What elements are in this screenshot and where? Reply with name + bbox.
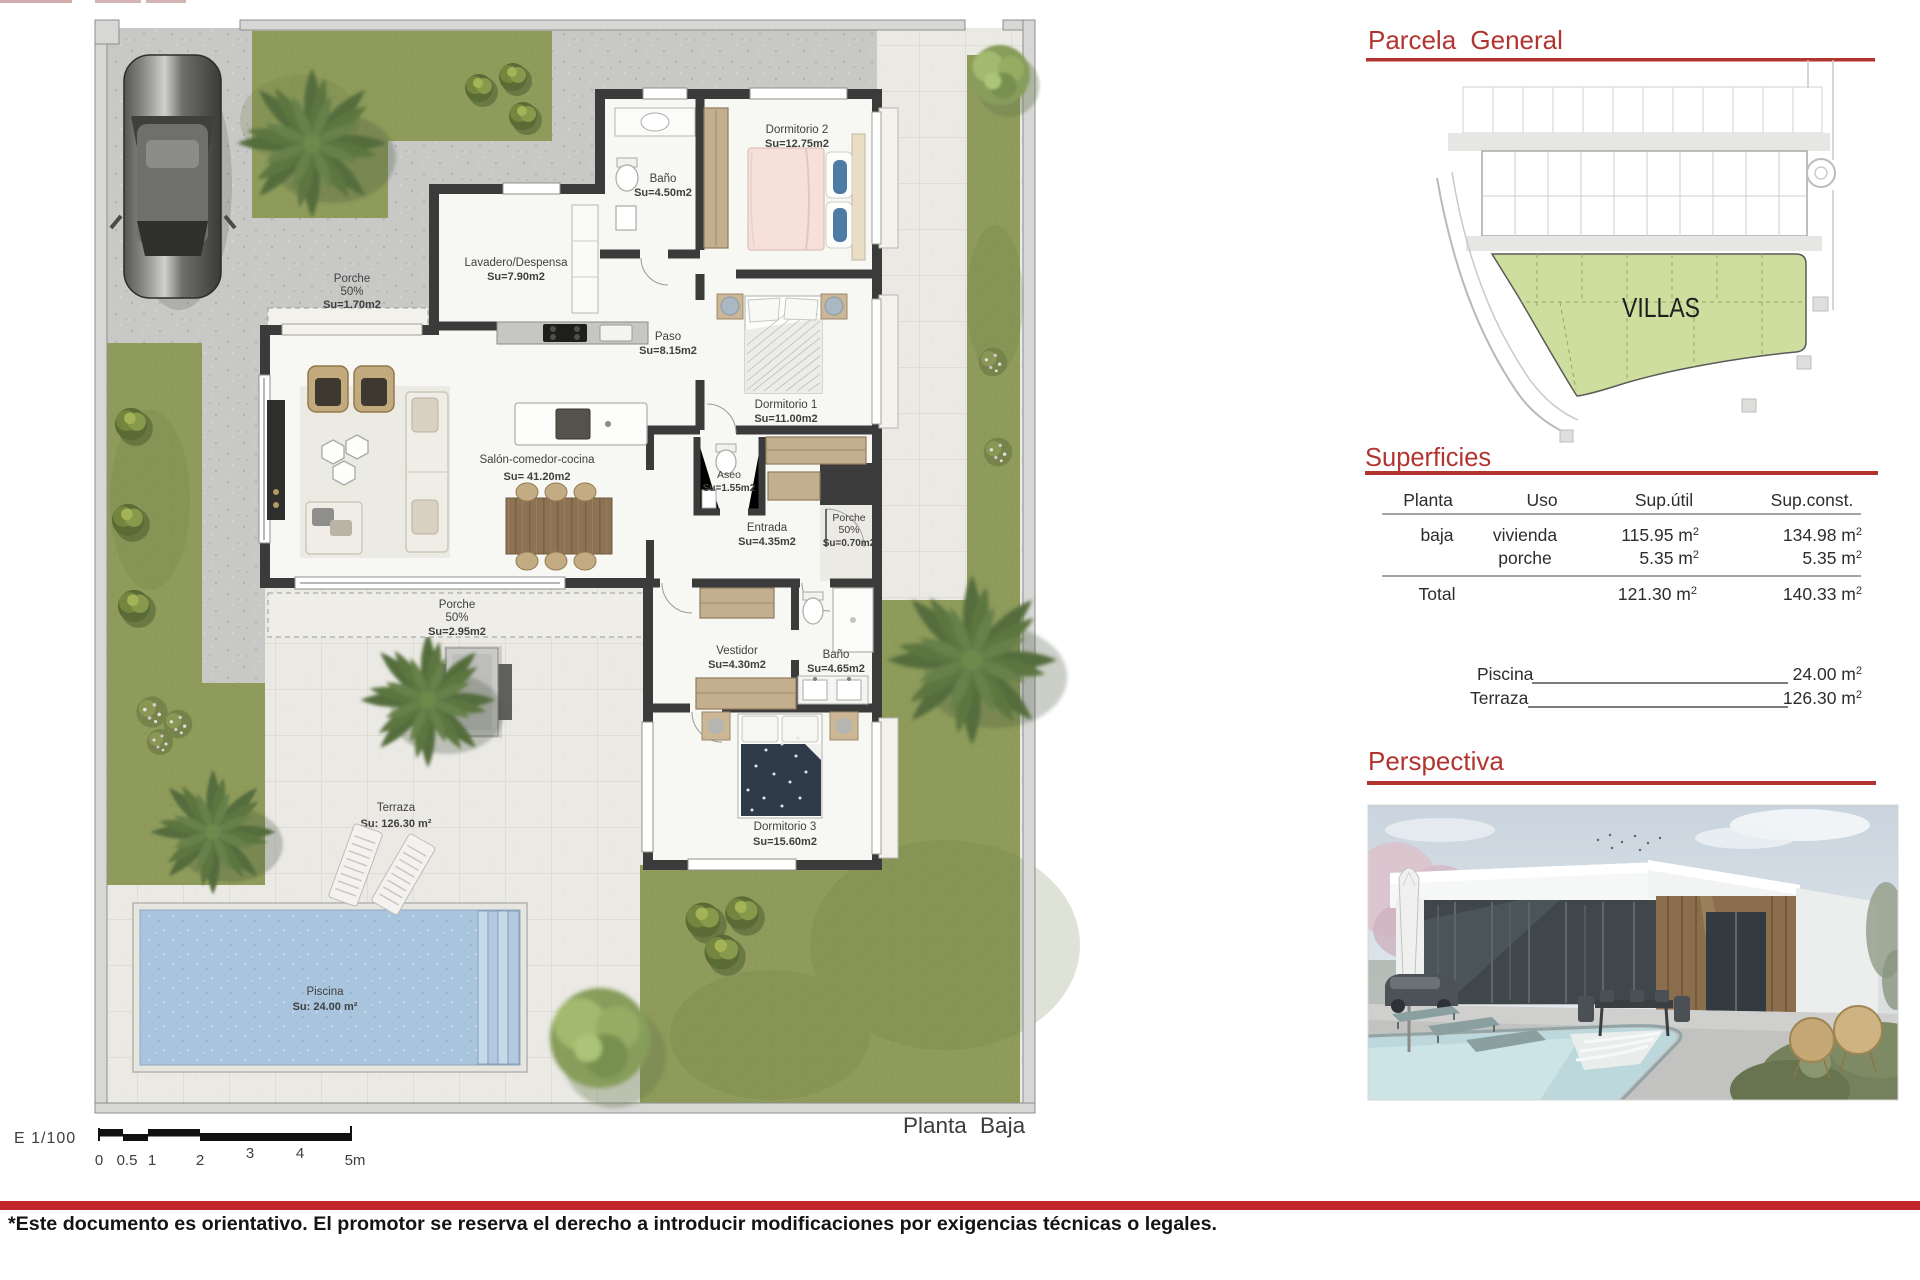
svg-text:Piscina: Piscina [306, 986, 344, 998]
svg-text:0.5: 0.5 [117, 1152, 138, 1169]
svg-text:Su=2.95m2: Su=2.95m2 [428, 626, 486, 638]
svg-text:Vestidor: Vestidor [716, 645, 758, 657]
svg-text:Terraza: Terraza [377, 802, 416, 814]
svg-text:Superficies: Superficies [1365, 444, 1491, 472]
svg-text:140.33 m2: 140.33 m2 [1783, 584, 1862, 604]
svg-text:Su=8.15m2: Su=8.15m2 [639, 345, 697, 357]
svg-text:Paso: Paso [655, 331, 681, 343]
svg-text:VILLAS: VILLAS [1622, 292, 1700, 323]
svg-text:50%: 50% [445, 612, 468, 624]
svg-text:3: 3 [246, 1145, 254, 1162]
svg-text:Uso: Uso [1526, 490, 1557, 510]
svg-text:5.35 m2: 5.35 m2 [1639, 548, 1699, 568]
svg-text:Terraza: Terraza [1470, 688, 1529, 708]
svg-text:Sup.const.: Sup.const. [1771, 490, 1854, 510]
svg-text:Su=7.90m2: Su=7.90m2 [487, 271, 545, 283]
svg-text:Baño: Baño [823, 649, 850, 661]
svg-text:Aseo: Aseo [717, 469, 741, 481]
svg-text:134.98 m2: 134.98 m2 [1783, 525, 1862, 545]
svg-text:Planta: Planta [1403, 490, 1453, 510]
svg-text:Su=15.60m2: Su=15.60m2 [753, 836, 817, 848]
svg-text:Su=12.75m2: Su=12.75m2 [765, 138, 829, 150]
svg-text:115.95 m2: 115.95 m2 [1621, 525, 1699, 545]
svg-text:50%: 50% [838, 524, 859, 536]
svg-text:0: 0 [95, 1152, 103, 1169]
svg-text:Porche: Porche [439, 599, 475, 611]
svg-text:Dormitorio 3: Dormitorio 3 [754, 821, 817, 833]
svg-text:Perspectiva: Perspectiva [1368, 746, 1504, 776]
svg-text:126.30 m2: 126.30 m2 [1783, 688, 1862, 708]
svg-text:Porche: Porche [334, 273, 370, 285]
svg-text:Su=1.55m2: Su=1.55m2 [703, 483, 756, 494]
svg-text:Entrada: Entrada [747, 522, 788, 534]
svg-text:50%: 50% [340, 286, 363, 298]
svg-text:vivienda: vivienda [1493, 525, 1557, 545]
svg-text:Total: Total [1419, 584, 1456, 604]
svg-text:Planta Baja: Planta Baja [903, 1113, 1026, 1138]
svg-text:Su=4.65m2: Su=4.65m2 [807, 663, 865, 675]
svg-text:*Este documento es orientativo: *Este documento es orientativo. El promo… [8, 1213, 1217, 1235]
svg-text:Su: 126.30 m²: Su: 126.30 m² [361, 818, 432, 830]
svg-text:Piscina: Piscina [1477, 664, 1534, 684]
svg-text:Su=0.70m2: Su=0.70m2 [823, 538, 876, 549]
svg-text:Lavadero/Despensa: Lavadero/Despensa [465, 257, 569, 269]
svg-text:Su=4.30m2: Su=4.30m2 [708, 659, 766, 671]
svg-text:Parcela General: Parcela General [1368, 25, 1563, 55]
svg-text:baja: baja [1420, 525, 1453, 545]
svg-text:Su: 24.00 m²: Su: 24.00 m² [293, 1001, 358, 1013]
svg-text:Su=11.00m2: Su=11.00m2 [754, 413, 817, 425]
svg-text:Baño: Baño [650, 173, 677, 185]
svg-text:121.30 m2: 121.30 m2 [1618, 584, 1697, 604]
svg-text:Porche: Porche [832, 512, 865, 524]
svg-text:5.35 m2: 5.35 m2 [1802, 548, 1862, 568]
svg-text:Su=4.50m2: Su=4.50m2 [634, 187, 692, 199]
svg-text:Sup.útil: Sup.útil [1635, 490, 1693, 510]
svg-text:Dormitorio 1: Dormitorio 1 [755, 399, 818, 411]
svg-text:2: 2 [196, 1152, 204, 1169]
svg-text:1: 1 [148, 1152, 156, 1169]
svg-text:Su=1.70m2: Su=1.70m2 [323, 299, 381, 311]
svg-text:Su=4.35m2: Su=4.35m2 [738, 536, 796, 548]
svg-text:24.00 m2: 24.00 m2 [1793, 664, 1862, 684]
svg-text:Dormitorio 2: Dormitorio 2 [766, 124, 829, 136]
svg-text:Salón-comedor-cocina: Salón-comedor-cocina [479, 454, 595, 466]
svg-text:porche: porche [1498, 548, 1552, 568]
svg-text:Su= 41.20m2: Su= 41.20m2 [504, 471, 571, 483]
svg-text:5m: 5m [345, 1152, 366, 1169]
svg-text:4: 4 [296, 1145, 304, 1162]
svg-text:E 1/100: E 1/100 [14, 1130, 76, 1147]
